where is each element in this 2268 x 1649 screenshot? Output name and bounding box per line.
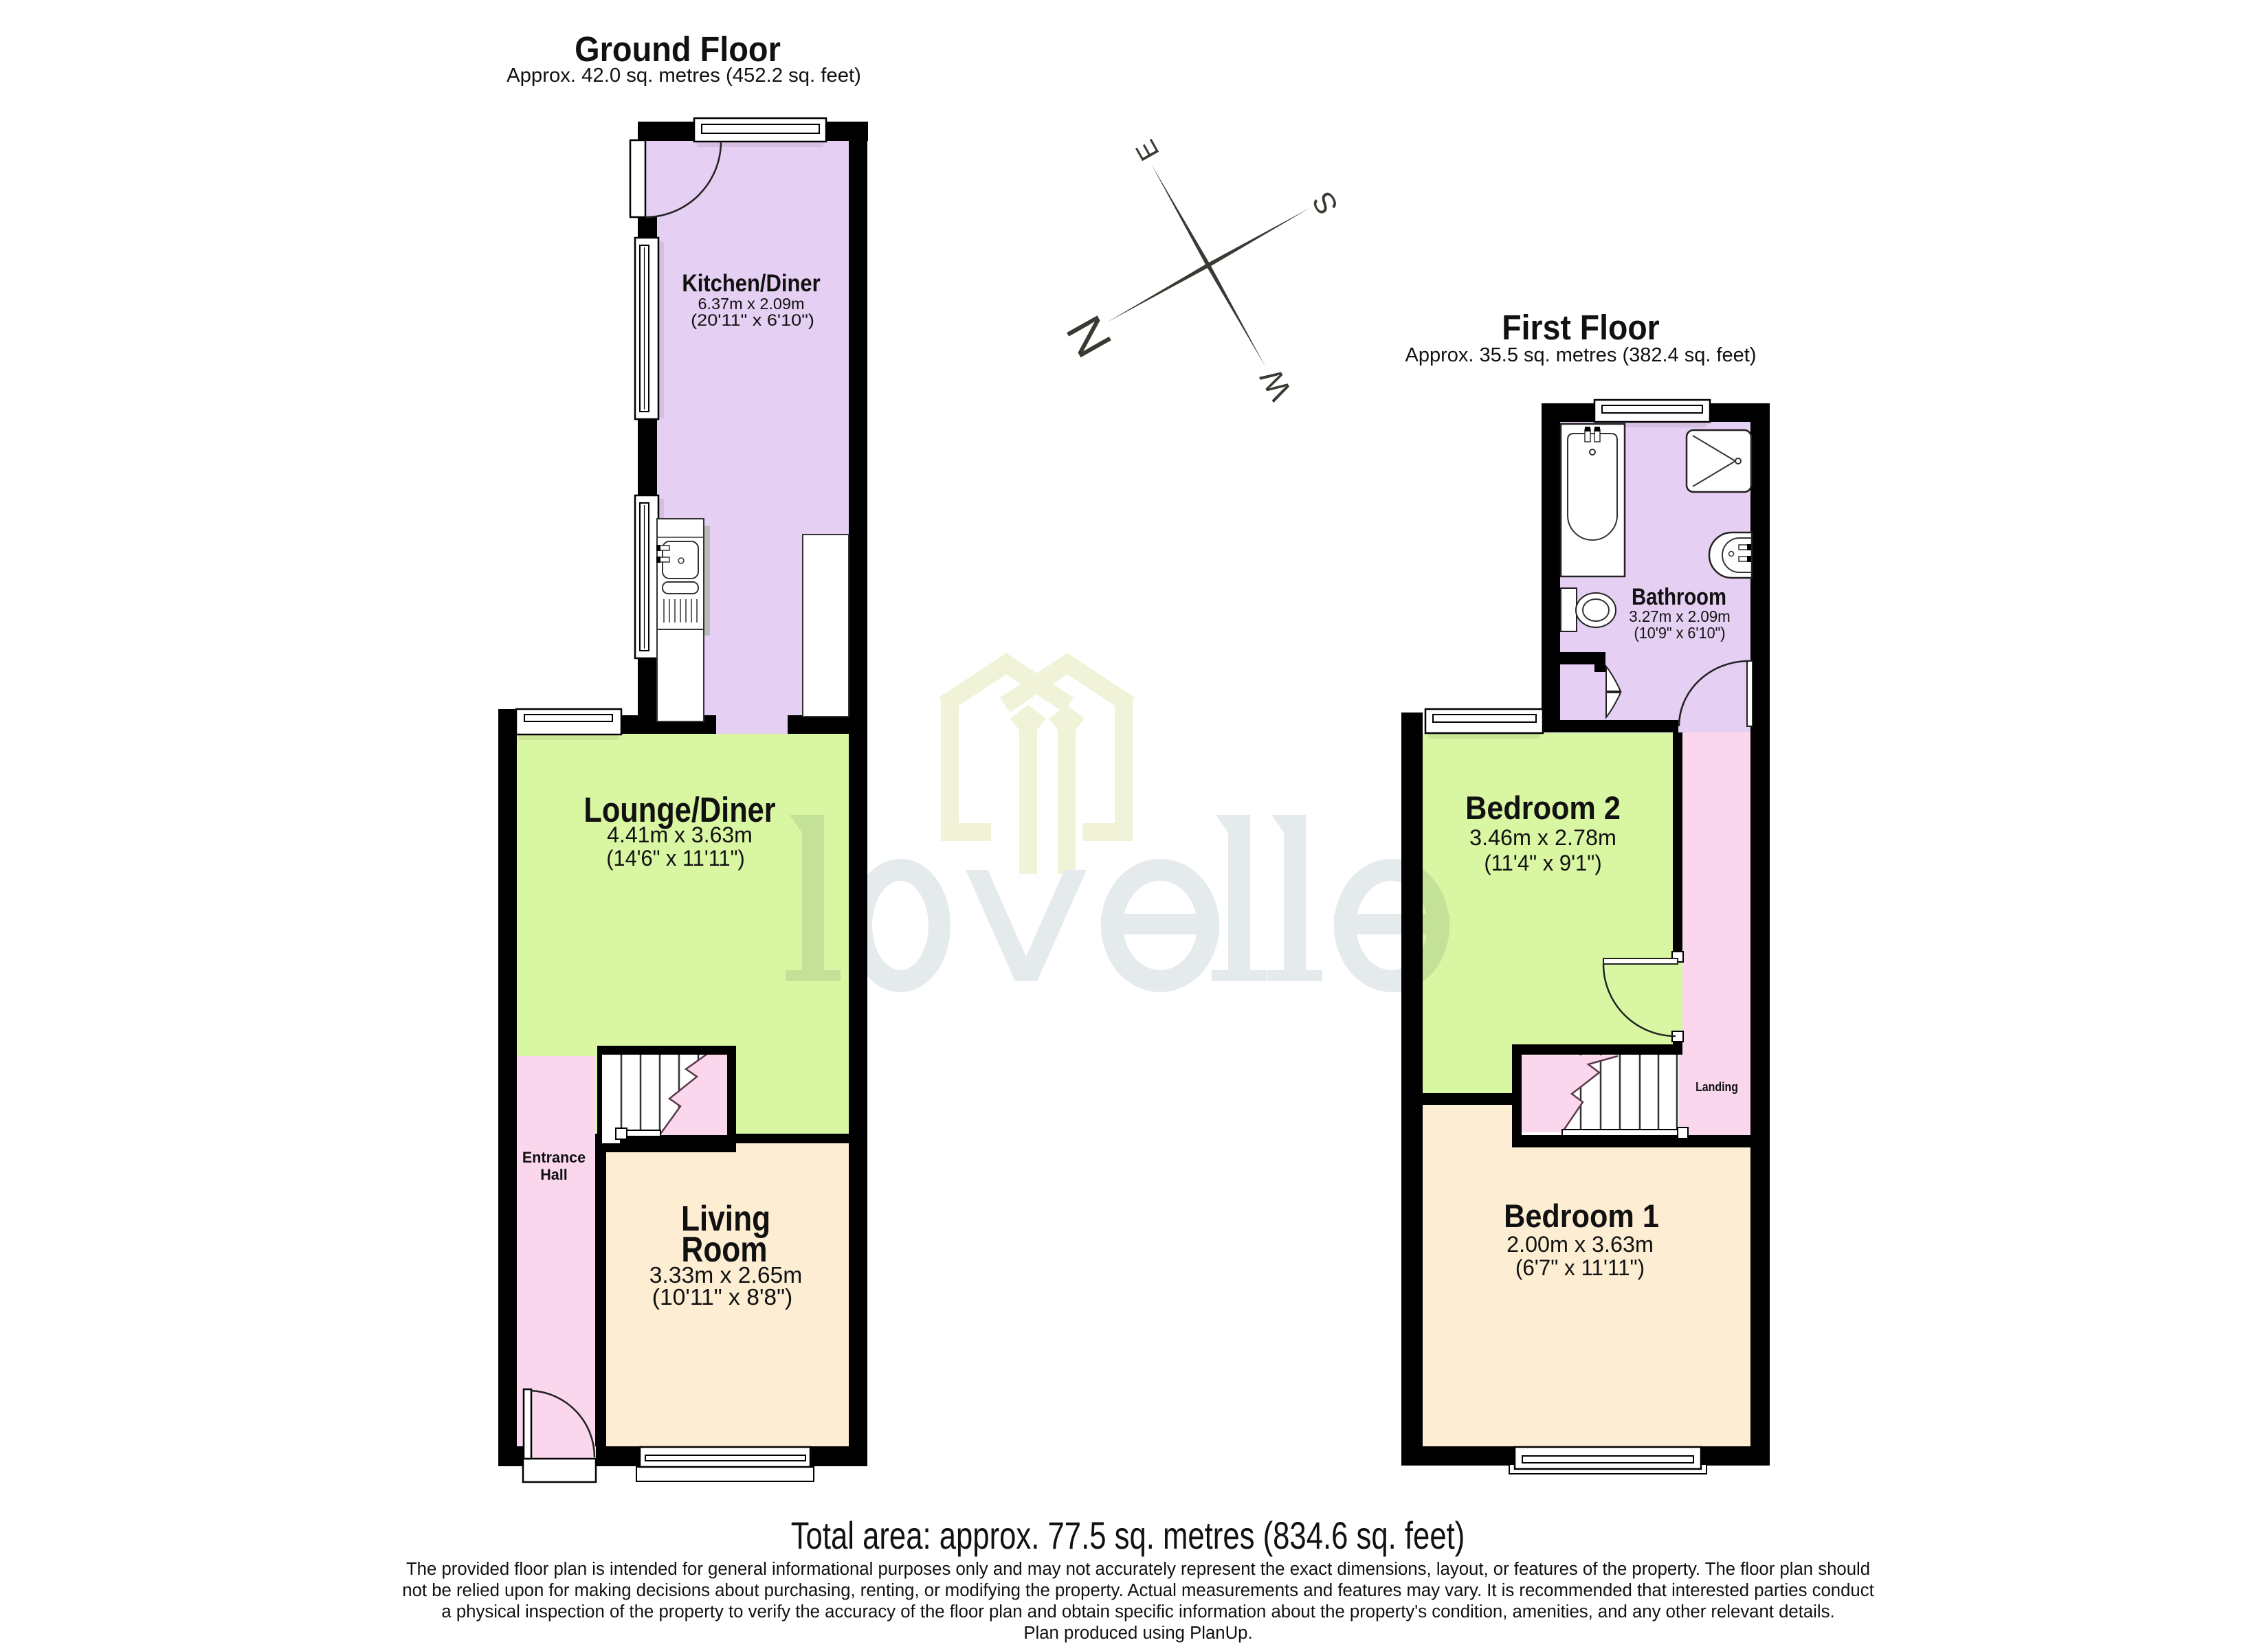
svg-text:Approx. 35.5 sq. metres (382.4: Approx. 35.5 sq. metres (382.4 sq. feet) (1405, 344, 1757, 366)
svg-text:(14'6" x 11'11"): (14'6" x 11'11") (606, 846, 744, 871)
svg-text:S: S (1306, 186, 1345, 221)
svg-text:(10'11" x 8'8"): (10'11" x 8'8") (652, 1285, 793, 1310)
svg-text:3.27m x 2.09m: 3.27m x 2.09m (1629, 607, 1730, 625)
svg-text:(6'7" x 11'11"): (6'7" x 11'11") (1515, 1255, 1645, 1280)
svg-text:Landing: Landing (1696, 1079, 1738, 1094)
svg-text:6.37m x 2.09m: 6.37m x 2.09m (698, 295, 804, 313)
svg-text:Bathroom: Bathroom (1632, 583, 1726, 610)
svg-text:a physical inspection of the p: a physical inspection of the property to… (441, 1602, 1834, 1622)
svg-text:(10'9" x 6'10"): (10'9" x 6'10") (1634, 624, 1726, 642)
svg-text:Bedroom 1: Bedroom 1 (1504, 1198, 1659, 1234)
svg-text:(11'4" x 9'1"): (11'4" x 9'1") (1484, 851, 1601, 876)
svg-text:E: E (1130, 135, 1165, 166)
svg-text:Entrance: Entrance (522, 1149, 586, 1166)
svg-text:Ground Floor: Ground Floor (575, 30, 781, 69)
svg-text:Hall: Hall (540, 1166, 568, 1183)
svg-text:(20'11" x 6'10"): (20'11" x 6'10") (691, 311, 814, 329)
svg-text:not be relied upon for making: not be relied upon for making decisions … (402, 1581, 1874, 1600)
svg-text:Approx. 42.0 sq. metres (452.2: Approx. 42.0 sq. metres (452.2 sq. feet) (507, 65, 861, 87)
svg-text:Total area: approx. 77.5 sq. m: Total area: approx. 77.5 sq. metres (834… (791, 1514, 1465, 1557)
svg-text:Plan produced using PlanUp.: Plan produced using PlanUp. (1023, 1624, 1252, 1643)
svg-text:4.41m x 3.63m: 4.41m x 3.63m (607, 822, 753, 847)
svg-text:N: N (1055, 306, 1123, 366)
svg-text:Bedroom 2: Bedroom 2 (1465, 789, 1621, 826)
svg-text:W: W (1252, 363, 1298, 407)
svg-text:3.46m x 2.78m: 3.46m x 2.78m (1469, 825, 1616, 850)
svg-text:Kitchen/Diner: Kitchen/Diner (682, 270, 820, 297)
svg-text:The provided floor plan is int: The provided floor plan is intended for … (406, 1560, 1870, 1579)
svg-text:First Floor: First Floor (1502, 309, 1659, 347)
svg-text:2.00m x 3.63m: 2.00m x 3.63m (1507, 1232, 1654, 1257)
